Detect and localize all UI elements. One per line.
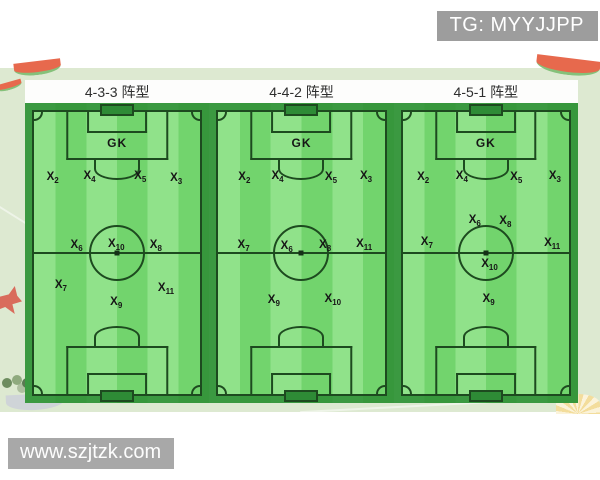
player-x9: X9 [483, 293, 495, 307]
player-x4: X4 [271, 170, 283, 184]
watermark-badge: www.szjtzk.com [8, 438, 174, 469]
watermelon-icon [535, 54, 600, 79]
player-x6: X6 [469, 214, 481, 228]
player-x5: X5 [510, 171, 522, 185]
fields-row: GK X2X4X5X3X6X10X8X7X11X9 GK X2X4X5X3X7X… [25, 103, 578, 403]
player-x3: X3 [170, 171, 182, 185]
player-x6: X6 [71, 239, 83, 253]
soccer-field-3: GK X2X4X5X3X6X8X7X11X10X9 [394, 103, 578, 403]
player-x3: X3 [360, 170, 372, 184]
player-x10: X10 [108, 238, 125, 252]
plant-icon [2, 378, 12, 388]
player-x8: X8 [150, 239, 162, 253]
titles-row: 4-3-3 阵型4-4-2 阵型4-5-1 阵型 [25, 80, 578, 103]
players-layer: X2X4X5X3X6X10X8X7X11X9 [25, 103, 209, 403]
page: TG: MYYJJPP 4-3-3 阵型4-4-2 阵型4-5-1 阵型 [0, 0, 600, 480]
tg-badge: TG: MYYJJPP [437, 11, 598, 41]
player-x11: X11 [544, 237, 560, 251]
player-x7: X7 [238, 239, 250, 253]
player-x10: X10 [481, 258, 498, 272]
formation-title: 4-3-3 阵型 [25, 82, 209, 102]
soccer-field-1: GK X2X4X5X3X6X10X8X7X11X9 [25, 103, 209, 403]
player-x8: X8 [319, 239, 331, 253]
decor-panel: 4-3-3 阵型4-4-2 阵型4-5-1 阵型 GK X2X4X5X3X6X1… [0, 68, 600, 412]
player-x3: X3 [549, 170, 561, 184]
player-x5: X5 [134, 169, 146, 183]
player-x4: X4 [456, 170, 468, 184]
watermelon-icon [0, 79, 23, 94]
player-x7: X7 [421, 236, 433, 250]
player-x2: X2 [238, 171, 250, 185]
player-x11: X11 [158, 282, 174, 296]
soccer-field-2: GK X2X4X5X3X7X6X8X11X9X10 [209, 103, 393, 403]
player-x2: X2 [417, 171, 429, 185]
player-x5: X5 [325, 171, 337, 185]
player-x6: X6 [281, 240, 293, 254]
coral-icon [0, 286, 22, 314]
formation-title: 4-5-1 阵型 [394, 82, 578, 102]
player-x9: X9 [110, 295, 122, 309]
player-x11: X11 [356, 238, 372, 252]
player-x2: X2 [47, 171, 59, 185]
players-layer: X2X4X5X3X7X6X8X11X9X10 [209, 103, 393, 403]
player-x9: X9 [268, 294, 280, 308]
formation-title: 4-4-2 阵型 [209, 82, 393, 102]
players-layer: X2X4X5X3X6X8X7X11X10X9 [394, 103, 578, 403]
player-x10: X10 [325, 293, 342, 307]
player-x8: X8 [499, 215, 511, 229]
player-x4: X4 [83, 170, 95, 184]
player-x7: X7 [55, 279, 67, 293]
watermelon-icon [13, 58, 61, 78]
formations-image: 4-3-3 阵型4-4-2 阵型4-5-1 阵型 GK X2X4X5X3X6X1… [25, 80, 578, 403]
